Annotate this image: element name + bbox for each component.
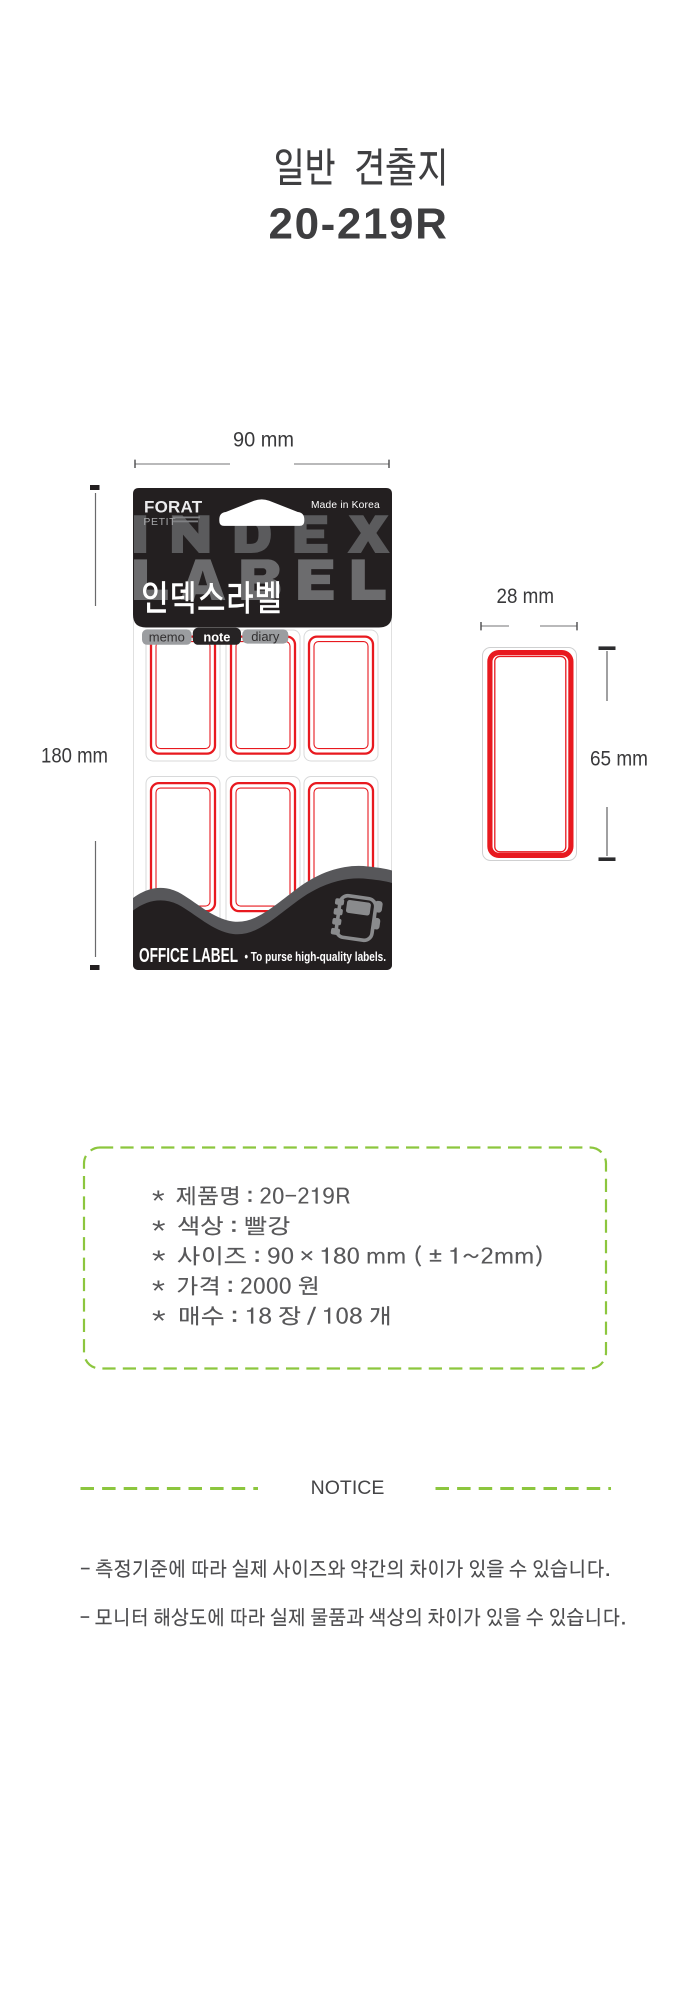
svg-text:NOTICE: NOTICE	[311, 1477, 385, 1499]
svg-text:diary: diary	[251, 629, 280, 644]
svg-text:180 mm: 180 mm	[41, 745, 108, 768]
svg-text:FORAT: FORAT	[144, 498, 203, 517]
svg-text:OFFICE LABEL: OFFICE LABEL	[139, 944, 238, 967]
svg-text:• To purse high-quality labels: • To purse high-quality labels.	[245, 950, 387, 964]
svg-text:note: note	[203, 629, 230, 644]
svg-text:PETIT: PETIT	[143, 516, 176, 528]
svg-text:20-219R: 20-219R	[269, 200, 449, 249]
svg-text:28 mm: 28 mm	[497, 585, 555, 608]
svg-text:90 mm: 90 mm	[233, 428, 294, 451]
svg-text:memo: memo	[149, 630, 185, 645]
svg-text:65 mm: 65 mm	[590, 748, 648, 771]
svg-text:Made in Korea: Made in Korea	[311, 500, 380, 511]
